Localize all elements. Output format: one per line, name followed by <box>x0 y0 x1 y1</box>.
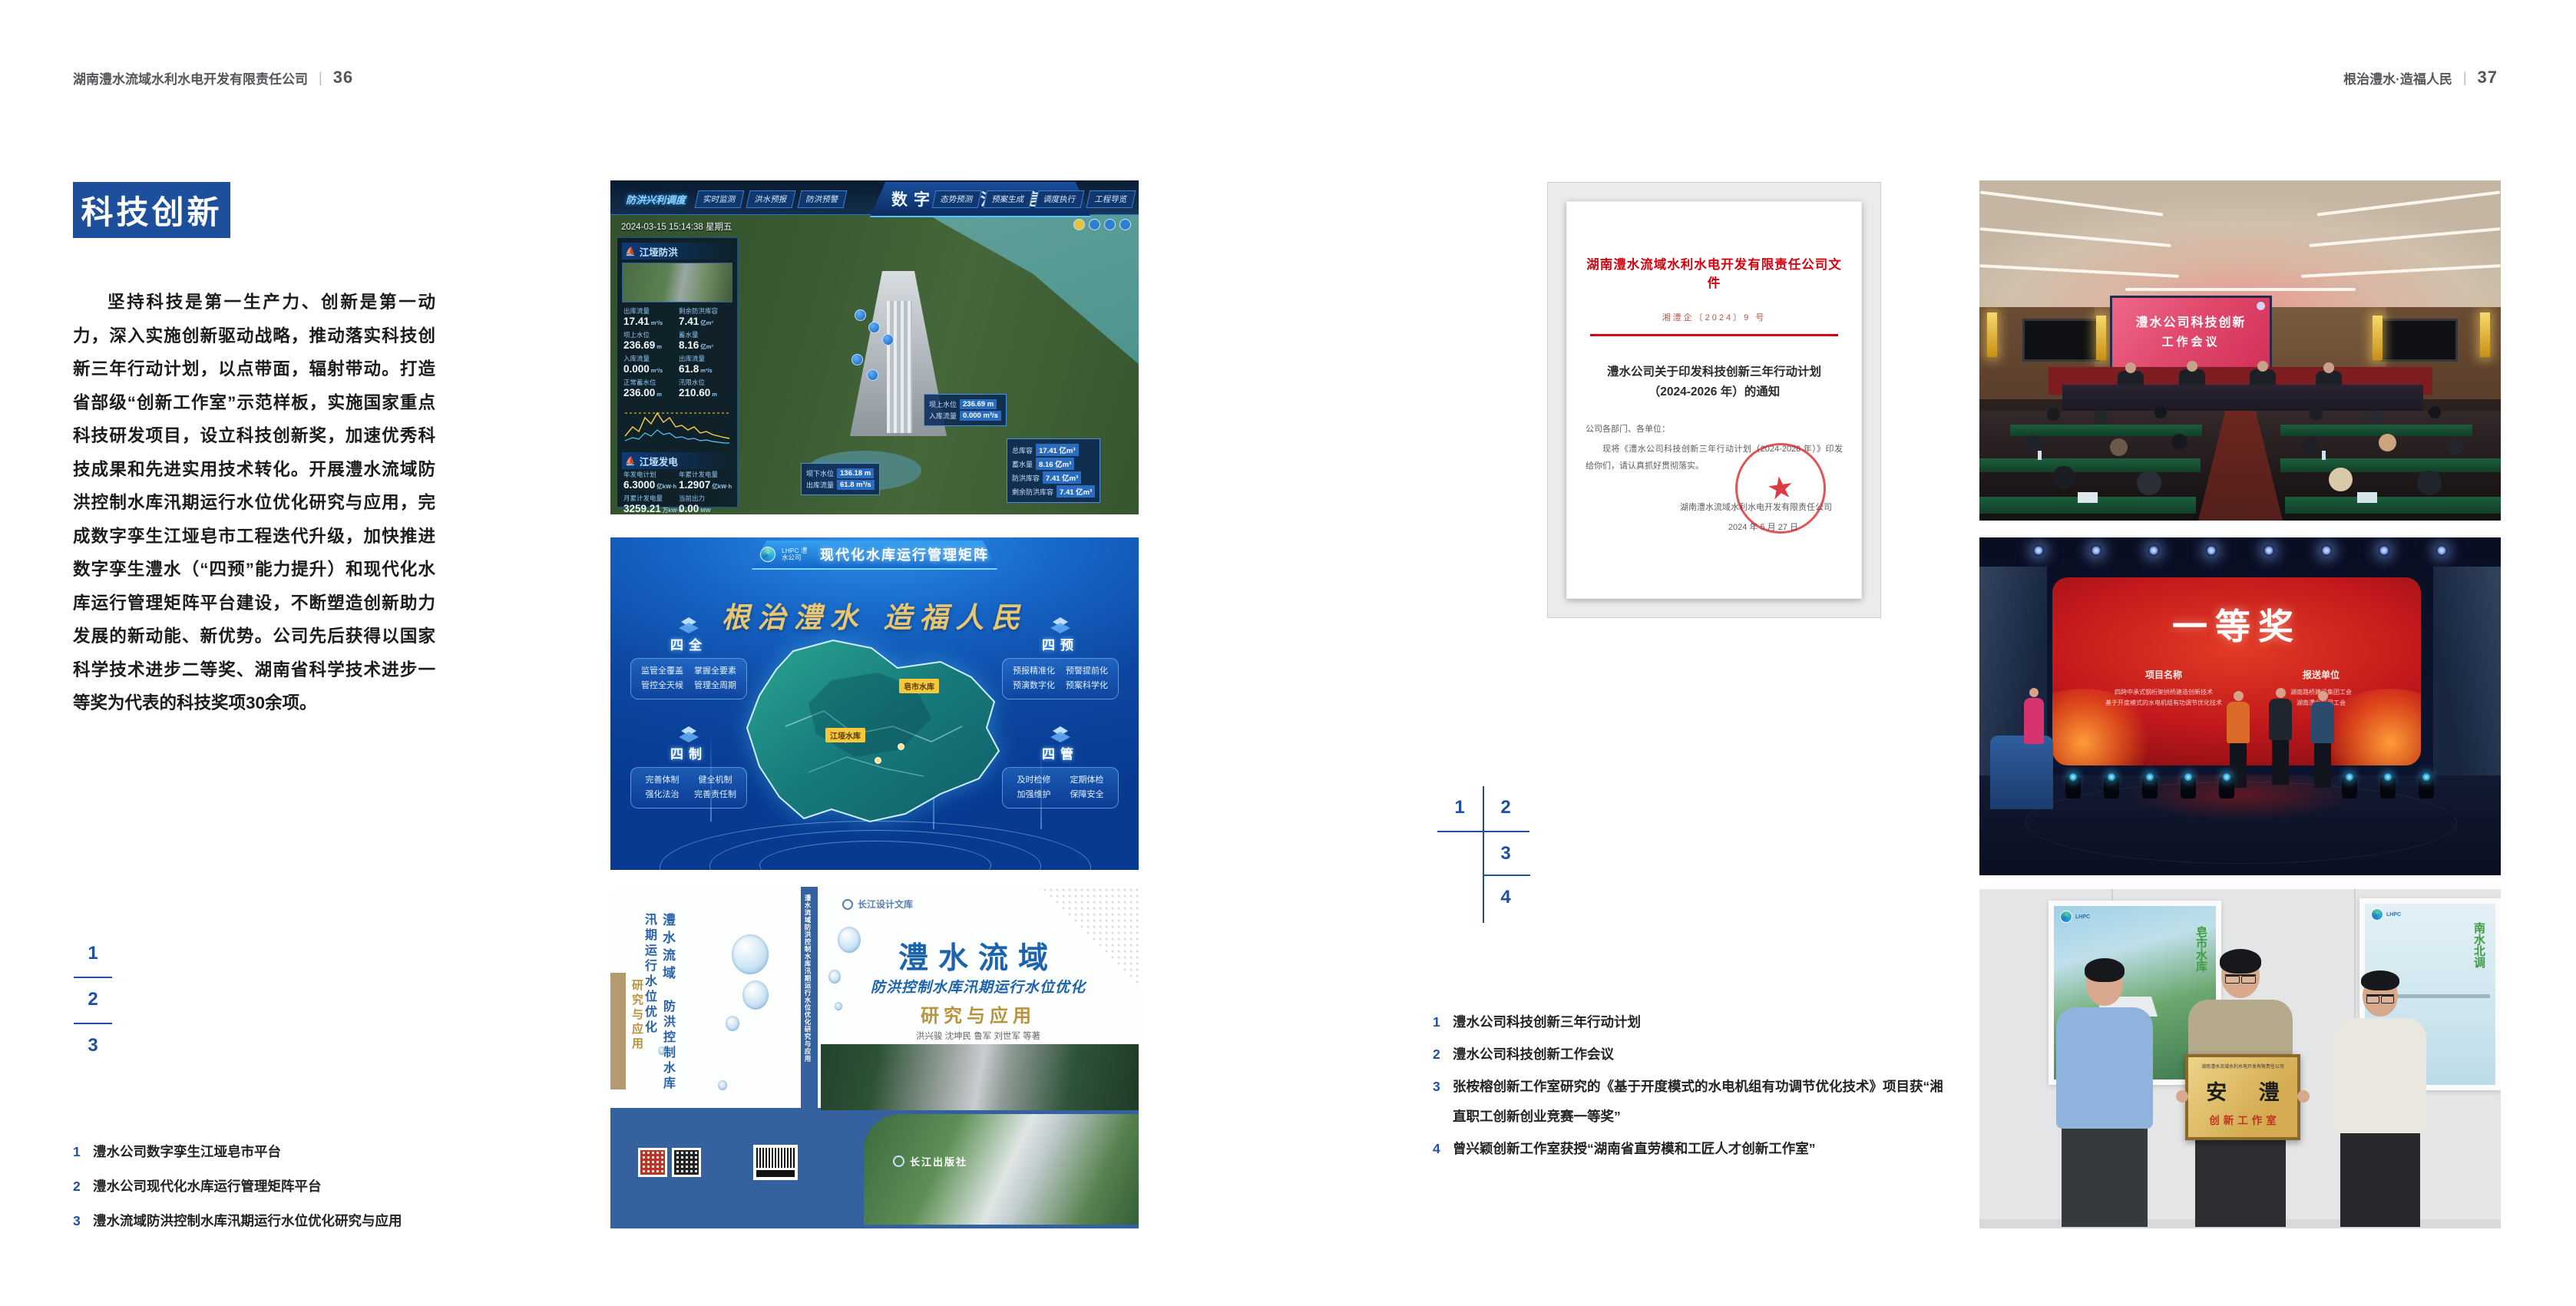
tooltip-value: 136.18 m <box>837 468 874 478</box>
audience-desk <box>2285 497 2501 514</box>
caption-row: 2 澧水公司科技创新工作会议 <box>1433 1040 1963 1070</box>
figure-matrix-platform: LHPC 澧水公司 现代化水库运行管理矩阵 根治澧水 造福人民 皂市水库 江垭水… <box>610 537 1139 870</box>
moving-head-light <box>2380 777 2396 798</box>
company-name: 湖南澧水流域水利水电开发有限责任公司 <box>73 68 308 88</box>
metric: 出库流量17.41m³/s <box>622 306 677 329</box>
tooltip-label: 坝下水位 <box>806 468 834 478</box>
caption-text: 澧水公司现代化水库运行管理矩阵平台 <box>93 1177 322 1195</box>
audience-member <box>2137 471 2161 495</box>
locate-icon <box>1104 219 1116 230</box>
mode-label: 防洪兴利调度 <box>626 192 686 207</box>
green-dam-photo <box>864 1114 1139 1225</box>
tooltip-value: 0.000 m³/s <box>960 411 1001 421</box>
metric-value: 210.60 <box>679 387 710 398</box>
panel-item: 管理全周期 <box>689 679 742 693</box>
publisher-logo-row: 长江出版社 <box>893 1154 967 1169</box>
column-line: 基于开度模式的水电机组有功调节优化技术 <box>2095 698 2233 709</box>
platform-header: LHPC 澧水公司 现代化水库运行管理矩阵 <box>752 541 997 570</box>
metric: 当前出力0.00MW <box>677 493 732 514</box>
metric-value: 1.2907 <box>679 479 710 491</box>
series-logo-row: 长江设计文库 <box>842 898 913 911</box>
metric-unit: m <box>712 391 717 398</box>
column-line: 四跨中承式钢桁架拱桥建造创新技术 <box>2095 687 2233 698</box>
lhpc-logo-icon <box>2060 911 2072 923</box>
metric-value: 0.000 <box>623 363 650 375</box>
index-rule <box>74 977 112 978</box>
back-cover-titles: 澧水流域 防洪控制水库汛期运行水位优化 <box>640 913 677 1105</box>
left-data-panel: ⛵江垭防洪 出库流量17.41m³/s 剩余防洪库容7.41亿m³ 坝上水位23… <box>617 237 738 508</box>
red-rule <box>1590 334 1838 336</box>
panel-item: 监管全覆盖 <box>636 664 689 679</box>
caption-row: 1 澧水公司数字孪生江垭皂市平台 <box>73 1142 402 1161</box>
awardee-orange <box>2227 691 2250 788</box>
moving-head-light <box>2219 777 2234 798</box>
metric: 入库流量0.000m³/s <box>622 353 677 377</box>
metric: 月累计发电量3259.21万kW·h <box>622 493 677 514</box>
column-header: 项目名称 <box>2095 668 2233 681</box>
tooltip-value: 17.41 亿m³ <box>1036 444 1079 456</box>
tab-dispatch-execution: 调度执行 <box>1035 190 1085 208</box>
audience-member <box>2171 434 2187 450</box>
panel-item: 完善责任制 <box>689 788 742 802</box>
poster-calligraphy: 南水北调 <box>2472 922 2488 968</box>
back-title-tail: 研究与应用 <box>629 979 645 1052</box>
moving-head-light <box>2419 777 2434 798</box>
metric-label: 月累计发电量 <box>623 494 676 503</box>
tab-situation-forecast: 态势预测 <box>932 190 982 208</box>
panel-item: 管控全天候 <box>636 679 689 693</box>
tooltip-value: 61.8 m³/s <box>837 480 875 490</box>
stage-spotlight <box>2033 545 2044 556</box>
metric: 汛限水位210.60m <box>677 377 732 401</box>
tab-project-tour: 工程导览 <box>1086 190 1136 208</box>
caption-number: 3 <box>73 1212 93 1230</box>
water-droplet <box>726 1016 739 1031</box>
document-number: 湘澧企〔2024〕9 号 <box>1586 311 1843 323</box>
press-logo-icon <box>842 899 853 910</box>
audience-member <box>2417 471 2442 495</box>
isometric-icon <box>679 617 699 631</box>
project-column: 项目名称 四跨中承式钢桁架拱桥建造创新技术 基于开度模式的水电机组有功调节优化技… <box>2095 668 2233 709</box>
index-rule <box>1437 831 1529 832</box>
series-name: 长江设计文库 <box>858 898 913 911</box>
photo-award-ceremony: 一等奖 项目名称 四跨中承式钢桁架拱桥建造创新技术 基于开度模式的水电机组有功调… <box>1979 537 2501 875</box>
panel-siguan: 四管 及时检修 定期体检 加强维护 保障安全 <box>1002 726 1119 808</box>
moving-head-light <box>2181 777 2196 798</box>
metric: 剩余防洪库容7.41亿m³ <box>677 306 732 329</box>
dam-marker <box>868 322 880 333</box>
panel-item: 健全机制 <box>689 773 742 788</box>
water-level-chart <box>622 402 732 447</box>
metric-unit: 亿m³ <box>700 343 713 350</box>
screen-logo-icon <box>2257 302 2265 310</box>
metric-label: 剩余防洪库容 <box>679 306 731 316</box>
audience-member <box>2448 438 2464 455</box>
header-divider: | <box>2463 70 2467 86</box>
figure-book-cover: 澧水流域 防洪控制水库汛期运行水位优化 研究与应用 澧水流域防洪控制水库汛期运行… <box>610 887 1139 1228</box>
back-title-main: 澧水流域 <box>660 913 675 984</box>
publisher-name: 长江出版社 <box>910 1154 967 1169</box>
document-red-header: 湖南澧水流域水利水电开发有限责任公司文件 <box>1586 254 1843 291</box>
lhpc-brand-text: LHPC <box>2386 912 2401 918</box>
water-droplet <box>828 970 841 984</box>
stage-wing-right <box>2433 567 2501 797</box>
toolbar-icons <box>1073 219 1131 230</box>
metric-label: 坝上水位 <box>623 330 676 339</box>
figure-digital-twin-dashboard: 防洪兴利调度 实时监测 洪水预报 防洪预警 数字孪生江垭皂市 态势预测 预案生成… <box>610 180 1139 514</box>
alert-icon <box>1119 219 1131 230</box>
power-panel-title: 江垭发电 <box>640 454 678 468</box>
magazine-spread: 湖南澧水流域水利水电开发有限责任公司 | 36 根治澧水·造福人民 | 37 科… <box>0 0 2576 1306</box>
screen-title-line1: 澧水公司科技创新 <box>2112 312 2270 330</box>
index-vline <box>1483 786 1484 923</box>
person-left <box>2056 963 2153 1227</box>
panel-title: 四制 <box>630 743 747 762</box>
metric-unit: 亿kW·h <box>712 483 732 490</box>
stage-spotlight <box>2206 545 2217 556</box>
watershed-map: 皂市水库 江垭水库 <box>739 634 1010 835</box>
hand <box>2297 1090 2310 1103</box>
right-page-header: 根治澧水·造福人民 | 37 <box>2343 68 2498 88</box>
figure-index-2: 2 <box>84 989 101 1010</box>
caption-number: 1 <box>73 1142 93 1161</box>
water-droplet <box>838 927 861 953</box>
panel-item: 掌握全要素 <box>689 664 742 679</box>
isbn-barcode <box>753 1145 798 1180</box>
tooltip-label: 蓄水量 <box>1012 459 1033 469</box>
wall-lamp <box>2480 312 2490 357</box>
metric-value: 236.00 <box>623 387 655 398</box>
document-page: 湖南澧水流域水利水电开发有限责任公司文件 湘澧企〔2024〕9 号 澧水公司关于… <box>1566 201 1862 599</box>
moving-head-light <box>2142 777 2158 798</box>
panel-siyu: 四预 预报精准化 预警提前化 预演数字化 预案科学化 <box>1002 617 1119 699</box>
metric-unit: m <box>656 343 662 350</box>
metric-unit: m <box>656 391 662 398</box>
host-figure <box>2024 688 2044 744</box>
panel-section-title: ⛵江垭防洪 <box>622 243 732 260</box>
article-paragraph: 坚持科技是第一生产力、创新是第一动力，深入实施创新驱动战略，推动落实科技创新三年… <box>73 286 435 720</box>
metric-unit: 亿kW·h <box>656 483 676 490</box>
flood-panel-title: 江垭防洪 <box>640 244 678 259</box>
metric-label: 正常蓄水位 <box>623 378 676 387</box>
metric: 年累计发电量1.2907亿kW·h <box>677 469 732 493</box>
metric: 正常蓄水位236.00m <box>622 377 677 401</box>
audience-member <box>2302 437 2319 454</box>
metric-unit: m³/s <box>651 319 663 326</box>
book-spine: 澧水流域防洪控制水库汛期运行水位优化研究与应用 <box>801 887 818 1228</box>
caption-text: 澧水流域防洪控制水库汛期运行水位优化研究与应用 <box>93 1212 402 1230</box>
tooltip-label: 坝上水位 <box>929 399 957 409</box>
wall-lamp <box>1987 312 1997 357</box>
water-droplet <box>835 1002 842 1010</box>
poster-logo: LHPC <box>2060 911 2090 923</box>
wall-lamp <box>2096 316 2106 360</box>
tooltip-label: 剩余防洪库容 <box>1012 487 1053 497</box>
book-title-tail: 研究与应用 <box>818 1000 1139 1027</box>
metric: 蓄水量8.16亿m³ <box>677 329 732 353</box>
ceiling-light <box>2125 288 2356 291</box>
map-tag-zaoshi: 皂市水库 <box>899 679 939 693</box>
audience-member <box>2095 411 2108 425</box>
slogan-text: 根治澧水·造福人民 <box>2343 68 2452 88</box>
panel-item: 预演数字化 <box>1007 679 1060 693</box>
stage-spotlight <box>2321 545 2332 556</box>
figure-official-document: 湖南澧水流域水利水电开发有限责任公司文件 湘澧企〔2024〕9 号 澧水公司关于… <box>1547 182 1881 618</box>
metric-value: 61.8 <box>679 363 699 375</box>
document-salutation: 公司各部门、各单位： <box>1586 422 1843 435</box>
caption-text: 张桉榕创新工作室研究的《基于开度模式的水电机组有功调节优化技术》项目获“湘直职工… <box>1453 1072 1944 1132</box>
audience-member <box>2367 411 2381 425</box>
tooltip-value: 8.16 亿m³ <box>1036 458 1074 470</box>
metric: 出库流量61.8m³/s <box>677 353 732 377</box>
audience-member <box>2052 466 2075 489</box>
poster-logo: LHPC <box>2371 908 2401 921</box>
section-badge: 科技创新 <box>73 182 230 238</box>
tooltip-label: 总库容 <box>1012 445 1033 455</box>
header-divider: | <box>319 70 322 86</box>
gorge-dam-photo <box>821 1044 1139 1110</box>
sail-icon: ⛵ <box>625 246 636 256</box>
water-droplet <box>718 1080 727 1090</box>
caption-number: 3 <box>1433 1072 1453 1102</box>
metric: 坝上水位236.69m <box>622 329 677 353</box>
tab-flood-forecast: 洪水预报 <box>746 190 796 208</box>
qr-code <box>638 1148 667 1177</box>
metric-value: 17.41 <box>623 316 650 327</box>
audience-member <box>2310 408 2323 421</box>
audience-desk <box>2010 425 2202 436</box>
water-bottle <box>2038 451 2042 460</box>
book-authors: 洪兴骏 沈坤民 鲁军 刘世军 等著 <box>818 1030 1139 1042</box>
presenter-suit <box>2269 688 2292 785</box>
metric-unit: MW <box>700 507 710 514</box>
index-rule <box>1483 875 1530 876</box>
tooltip-upstream: 坝上水位236.69 m 入库流量0.000 m³/s <box>924 394 1007 426</box>
qr-code <box>672 1148 701 1177</box>
metric-value: 0.00 <box>679 503 699 514</box>
hand <box>2176 1090 2188 1103</box>
stage-spotlight <box>2091 545 2101 556</box>
tooltip-capacity: 总库容17.41 亿m³ 蓄水量8.16 亿m³ 防洪库容7.41 亿m³ 剩余… <box>1007 438 1100 503</box>
seal-star-icon: ★ <box>1764 469 1797 508</box>
metric-label: 出库流量 <box>679 354 731 363</box>
awardee-navy <box>2311 691 2334 788</box>
left-page-header: 湖南澧水流域水利水电开发有限责任公司 | 36 <box>73 68 353 88</box>
figure-index-1: 1 <box>1451 797 1468 818</box>
tabs-right: 态势预测 预案生成 调度执行 工程导览 <box>934 190 1134 208</box>
panel-title: 四预 <box>1002 634 1119 653</box>
panel-item: 完善体制 <box>636 773 689 788</box>
datetime-label: 2024-03-15 15:14:38 星期五 <box>621 220 732 233</box>
metric-value: 6.3000 <box>623 479 655 491</box>
figure-index-2: 2 <box>1497 797 1514 818</box>
tabs-left: 实时监测 洪水预报 防洪预警 <box>696 190 845 208</box>
caption-text: 澧水公司数字孪生江垭皂市平台 <box>93 1142 281 1161</box>
photo-innovation-meeting: 澧水公司科技创新 工作会议 <box>1979 180 2501 521</box>
map-tag-jiangya: 江垭水库 <box>825 728 865 742</box>
audience-member <box>2025 435 2042 452</box>
audience-member <box>2110 438 2128 456</box>
caption-text: 澧水公司科技创新工作会议 <box>1453 1040 1614 1070</box>
lhpc-logo-icon <box>2371 908 2383 921</box>
map-marker-dot <box>875 757 881 764</box>
audience-member <box>2329 468 2353 491</box>
panel-title: 四全 <box>630 634 747 653</box>
isometric-icon <box>1050 726 1070 740</box>
moving-head-light <box>2342 777 2357 798</box>
stage-spotlight <box>2379 545 2389 556</box>
panel-item: 预警提前化 <box>1060 664 1113 679</box>
tissue-box <box>2357 492 2377 503</box>
tooltip-label: 出库流量 <box>806 480 834 490</box>
panel-item: 加强维护 <box>1007 788 1060 802</box>
metric-label: 年累计发电量 <box>679 470 731 479</box>
tooltip-value: 236.69 m <box>960 399 997 409</box>
lhpc-logo-icon <box>760 547 775 562</box>
tooltip-label: 防洪库容 <box>1012 473 1040 483</box>
audience-member <box>2379 434 2396 451</box>
dam-marker <box>882 334 894 346</box>
dam-marker <box>852 354 863 365</box>
metric-value: 3259.21 <box>623 503 661 514</box>
metric-unit: m³/s <box>700 367 712 374</box>
panel-item: 及时检修 <box>1007 773 1060 788</box>
page-number-left: 36 <box>333 68 353 88</box>
brand-text: LHPC 澧水公司 <box>782 547 814 561</box>
panel-siquan: 四全 监管全覆盖 掌握全要素 管控全天候 管理全周期 <box>630 617 747 699</box>
metric-label: 蓄水量 <box>679 330 731 339</box>
metric-label: 年发电计划 <box>623 470 676 479</box>
flood-metrics-grid: 出库流量17.41m³/s 剩余防洪库容7.41亿m³ 坝上水位236.69m … <box>622 306 732 401</box>
document-title-line1: 澧水公司关于印发科技创新三年行动计划 <box>1586 362 1843 382</box>
figure-index-3: 3 <box>1497 843 1514 865</box>
panel-section-title: ⛵江垭发电 <box>622 452 732 469</box>
tooltip-value: 7.41 亿m³ <box>1043 471 1081 484</box>
document-title-line2: （2024-2026 年）的通知 <box>1586 382 1843 402</box>
tooltip-value: 7.41 亿m³ <box>1057 485 1095 498</box>
audience-desk <box>1979 458 2201 472</box>
photo-innovation-studio-plaque: LHPC 皂市水库 LHPC 南水北调 湖南澧水流域水利水电开发有限责任公司 安… <box>1979 889 2501 1228</box>
left-captions: 1 澧水公司数字孪生江垭皂市平台 2 澧水公司现代化水库运行管理矩阵平台 3 澧… <box>73 1142 402 1246</box>
metric-label: 汛限水位 <box>679 378 731 387</box>
person-right <box>2334 975 2426 1227</box>
camera-icon <box>1089 219 1100 230</box>
wall-lamp <box>2373 316 2383 360</box>
audience-desk <box>2280 458 2501 472</box>
panel-item: 强化法治 <box>636 788 689 802</box>
publisher-logo-icon <box>893 1156 904 1167</box>
head-table <box>2062 385 2423 412</box>
audience-member <box>2047 408 2060 421</box>
page-number-right: 37 <box>2478 68 2498 88</box>
figure-index-1: 1 <box>84 943 101 964</box>
isometric-icon <box>1050 617 1070 631</box>
column-header: 报送单位 <box>2256 668 2386 681</box>
panel-item: 预案科学化 <box>1060 679 1113 693</box>
water-droplet <box>732 934 769 974</box>
host-podium <box>1990 736 2053 809</box>
figure-index-3: 3 <box>84 1035 101 1056</box>
document-mat: 湖南澧水流域水利水电开发有限责任公司文件 湘澧企〔2024〕9 号 澧水公司关于… <box>1547 182 1881 618</box>
isometric-icon <box>679 726 699 740</box>
audience-member <box>2154 406 2167 418</box>
panel-item: 预报精准化 <box>1007 664 1060 679</box>
caption-row: 1 澧水公司科技创新三年行动计划 <box>1433 1007 1963 1037</box>
lhpc-brand-text: LHPC <box>2075 914 2090 920</box>
index-rule <box>74 1023 112 1024</box>
spine-title: 澧水流域防洪控制水库汛期运行水位优化研究与应用 <box>803 894 812 1125</box>
power-metrics-grid: 年发电计划6.3000亿kW·h 年累计发电量1.2907亿kW·h 月累计发电… <box>622 469 732 514</box>
metric-label: 出库流量 <box>623 306 676 316</box>
caption-row: 4 曾兴颖创新工作室获授“湖南省直劳模和工匠人才创新工作室” <box>1433 1134 1963 1164</box>
tan-block <box>610 973 626 1089</box>
panel-item: 保障安全 <box>1060 788 1113 802</box>
platform-title: 现代化水库运行管理矩阵 <box>820 544 989 564</box>
water-droplet <box>658 1046 666 1055</box>
metric-unit: 亿m³ <box>700 319 713 326</box>
caption-text: 澧水公司科技创新三年行动计划 <box>1453 1007 1641 1037</box>
stage-spotlight <box>2264 545 2274 556</box>
audience-member <box>2429 406 2441 418</box>
screen-title-line2: 工作会议 <box>2112 333 2270 349</box>
metric-value: 8.16 <box>679 339 699 351</box>
metric-value: 236.69 <box>623 339 655 351</box>
wall-tv <box>2380 319 2458 362</box>
plaque-company-line: 湖南澧水流域水利水电开发有限责任公司 <box>2193 1062 2293 1069</box>
wall-tv <box>2022 319 2100 362</box>
sail-icon: ⛵ <box>625 456 636 466</box>
tooltip-label: 入库流量 <box>929 411 957 421</box>
dam-marker <box>867 369 878 381</box>
innovation-studio-plaque: 湖南澧水流域水利水电开发有限责任公司 安 澧 创新工作室 <box>2185 1054 2300 1140</box>
audience-desk <box>2280 425 2472 436</box>
caption-row: 3 张桉榕创新工作室研究的《基于开度模式的水电机组有功调节优化技术》项目获“湘直… <box>1433 1072 1963 1132</box>
metric-label: 入库流量 <box>623 354 676 363</box>
figure-index-4: 4 <box>1497 887 1514 908</box>
plaque-name: 安 澧 <box>2188 1076 2297 1106</box>
caption-row: 3 澧水流域防洪控制水库汛期运行水位优化研究与应用 <box>73 1212 402 1230</box>
tab-realtime-monitoring: 实时监测 <box>695 190 745 208</box>
book-title-sub: 防洪控制水库汛期运行水位优化 <box>818 976 1139 997</box>
dam-marker <box>855 309 866 321</box>
award-title: 一等奖 <box>2052 599 2421 650</box>
tissue-box <box>2078 492 2098 503</box>
moving-head-light <box>2104 777 2119 798</box>
stage-spotlight <box>2436 545 2447 556</box>
panel-item: 定期体检 <box>1060 773 1113 788</box>
metric-label: 当前出力 <box>679 494 731 503</box>
water-droplet <box>742 980 769 1010</box>
tab-plan-generation: 预案生成 <box>984 190 1033 208</box>
book-title-main: 澧水流域 <box>818 934 1139 977</box>
tooltip-downstream: 坝下水位136.18 m 出库流量61.8 m³/s <box>801 463 880 495</box>
stage-spotlight <box>2148 545 2159 556</box>
right-captions: 1 澧水公司科技创新三年行动计划 2 澧水公司科技创新工作会议 3 张桉榕创新工… <box>1433 1007 1963 1166</box>
metric-value: 7.41 <box>679 316 699 327</box>
caption-row: 2 澧水公司现代化水库运行管理矩阵平台 <box>73 1177 402 1195</box>
tab-flood-warning: 防洪预警 <box>798 190 848 208</box>
caption-number: 2 <box>1433 1040 1453 1070</box>
panel-sizhi: 四制 完善体制 健全机制 强化法治 完善责任制 <box>630 726 747 808</box>
map-marker-dot <box>898 743 904 750</box>
plaque-subtitle: 创新工作室 <box>2188 1112 2297 1127</box>
caption-number: 2 <box>73 1177 93 1195</box>
caption-number: 4 <box>1433 1134 1453 1164</box>
metric-unit: m³/s <box>651 367 663 374</box>
dam-thumbnail <box>622 263 732 303</box>
caption-number: 1 <box>1433 1007 1453 1037</box>
panel-title: 四管 <box>1002 743 1119 762</box>
